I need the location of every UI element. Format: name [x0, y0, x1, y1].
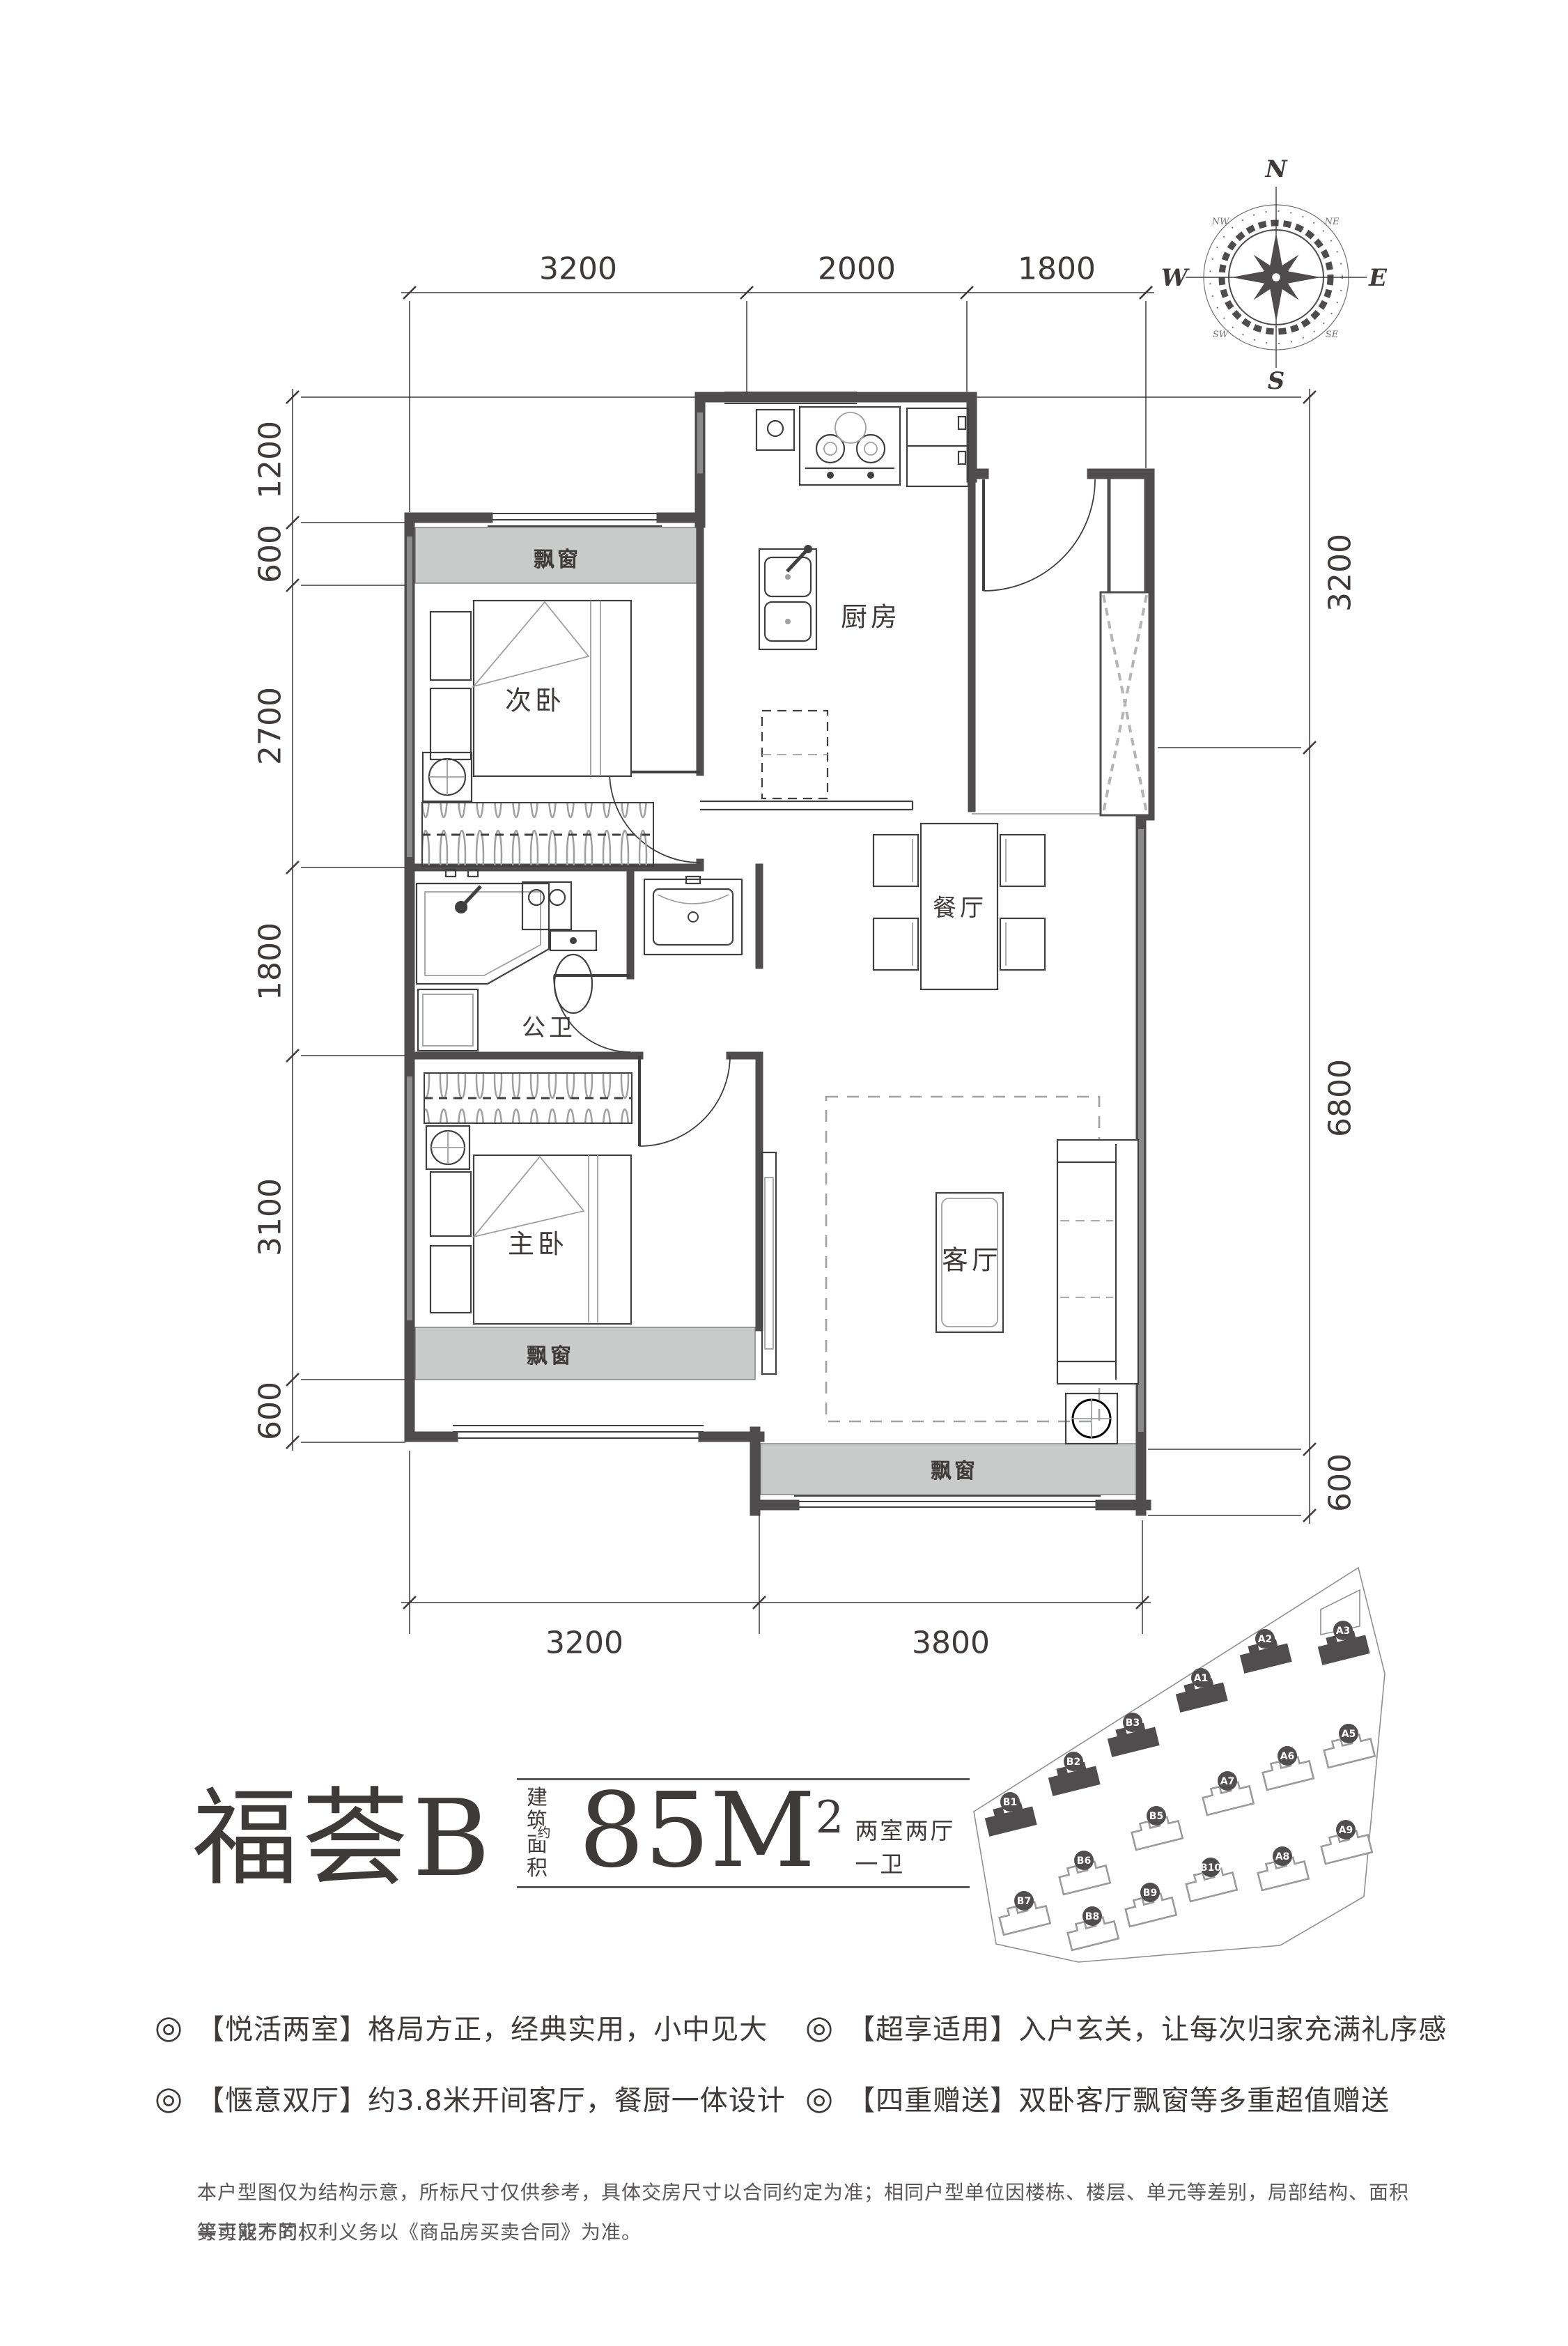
- site-bldg-label: A9: [1339, 1825, 1353, 1836]
- dim-right-2: 6800: [1323, 1059, 1358, 1137]
- dim-right-3: 600: [1323, 1453, 1358, 1512]
- dim-bottom-1: 3200: [545, 1626, 623, 1661]
- bullseye-icon: ◎: [805, 2011, 833, 2043]
- dim-top-3: 1800: [1018, 252, 1096, 287]
- dim-left-2: 600: [253, 525, 288, 583]
- site-bldg-label: B8: [1085, 1911, 1099, 1922]
- compass-ne: NE: [1324, 217, 1340, 227]
- compass-se: SE: [1326, 330, 1339, 340]
- hall-basin: [644, 877, 742, 955]
- room-label-bathroom: 公卫: [522, 1009, 576, 1043]
- compass-rose: N E S W NW NE SW SE: [1161, 155, 1388, 395]
- site-bldg-label: B5: [1149, 1811, 1163, 1822]
- bullseye-icon: ◎: [155, 2011, 183, 2043]
- dim-top-2: 2000: [818, 252, 896, 287]
- dim-left-5: 3100: [253, 1178, 288, 1256]
- dim-left-1: 1200: [253, 421, 288, 499]
- disclaimer-line2: 买卖双方的权利义务以《商品房买卖合同》为准。: [197, 2212, 1416, 2252]
- siteplan: A1 A2 A3 B1 B2 B3 A5 A6 A7 A8 A9: [974, 1568, 1385, 1962]
- feature-text: 【惬意双厅】约3.8米开间客厅，餐厨一体设计: [196, 2078, 786, 2118]
- area-value: 85M2: [579, 1779, 844, 1882]
- bay-window-label-bedroom2: 飘窗: [534, 542, 581, 573]
- feature-item: ◎ 【四重赠送】双卧客厅飘窗等多重超值赠送: [805, 2078, 1390, 2118]
- bullseye-icon: ◎: [805, 2082, 833, 2114]
- compass-sw: SW: [1213, 330, 1229, 340]
- dim-left-6: 600: [253, 1382, 288, 1440]
- floorplan-drawing: N E S W NW NE SW SE A1 A2 A3 B1 B2: [0, 0, 1568, 2346]
- dim-right-1: 3200: [1323, 534, 1358, 612]
- floorplan-poster: N E S W NW NE SW SE A1 A2 A3 B1 B2: [0, 0, 1568, 2346]
- room-label-master: 主卧: [508, 1223, 568, 1261]
- site-bldg-label: A3: [1336, 1626, 1351, 1637]
- area-number: 85M: [579, 1770, 816, 1890]
- room-label-living: 客厅: [942, 1239, 1002, 1277]
- site-bldg-label: A8: [1275, 1851, 1290, 1862]
- site-bldg-label: B2: [1066, 1757, 1080, 1768]
- bay-window-label-master: 飘窗: [527, 1338, 574, 1369]
- site-bldg-label: A6: [1280, 1751, 1295, 1762]
- site-bldg-label: A7: [1220, 1776, 1235, 1787]
- feature-item: ◎ 【悦活两室】格局方正，经典实用，小中见大: [155, 2007, 768, 2047]
- dim-bottom-2: 3800: [912, 1626, 990, 1661]
- feature-item: ◎ 【惬意双厅】约3.8米开间客厅，餐厨一体设计: [155, 2078, 786, 2118]
- site-bldg-label: B10: [1200, 1862, 1221, 1874]
- area-label: 建筑 面积 约: [527, 1786, 561, 1880]
- feature-text: 【悦活两室】格局方正，经典实用，小中见大: [196, 2007, 768, 2047]
- compass-e: E: [1368, 264, 1388, 292]
- site-bldg-label: A2: [1258, 1634, 1273, 1645]
- dim-left-3: 2700: [253, 687, 288, 765]
- area-approx: 约: [536, 1826, 553, 1840]
- dim-top-1: 3200: [539, 252, 617, 287]
- site-bldg-label: A5: [1342, 1729, 1356, 1740]
- dim-left-4: 1800: [253, 923, 288, 1001]
- area-block: 建筑 面积 约 85M2 两室两厅一卫: [517, 1778, 970, 1888]
- feature-text: 【超享适用】入户玄关，让每次归家充满礼序感: [847, 2007, 1447, 2047]
- compass-w: W: [1161, 264, 1190, 292]
- unit-name: 福荟B: [192, 1775, 495, 1902]
- compass-nw: NW: [1211, 217, 1230, 227]
- site-bldg-label: A1: [1194, 1673, 1209, 1684]
- feature-item: ◎ 【超享适用】入户玄关，让每次归家充满礼序感: [805, 2007, 1447, 2047]
- area-superscript: 2: [816, 1792, 844, 1844]
- bullseye-icon: ◎: [155, 2082, 183, 2114]
- unit-spec: 两室两厅一卫: [855, 1812, 970, 1879]
- compass-s: S: [1268, 367, 1285, 395]
- wardrobes: [422, 803, 653, 1123]
- site-bldg-label: B6: [1077, 1855, 1091, 1867]
- room-label-dining: 餐厅: [933, 889, 987, 923]
- duct-shaft: [1101, 592, 1149, 815]
- feature-text: 【四重赠送】双卧客厅飘窗等多重超值赠送: [847, 2078, 1390, 2118]
- site-bldg-label: B1: [1003, 1797, 1017, 1808]
- bay-window-label-living: 飘窗: [931, 1453, 978, 1484]
- site-bldg-label: B7: [1017, 1896, 1031, 1907]
- room-label-kitchen: 厨房: [841, 596, 901, 634]
- site-bldg-label: B9: [1143, 1888, 1157, 1899]
- compass-n: N: [1264, 155, 1288, 183]
- site-bldg-label: B3: [1126, 1718, 1140, 1729]
- room-label-bedroom2: 次卧: [505, 679, 565, 718]
